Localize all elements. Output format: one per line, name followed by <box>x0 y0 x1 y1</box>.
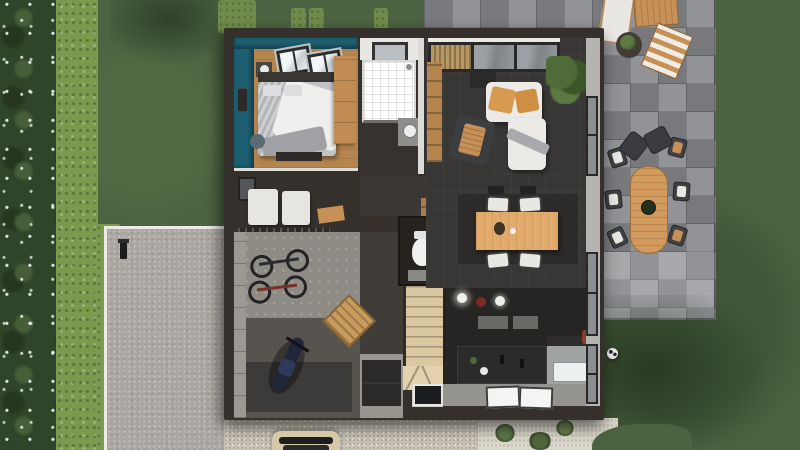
sink-faucet <box>500 355 504 364</box>
tall-hedge <box>56 0 98 450</box>
seat-cushion <box>488 86 516 114</box>
window-pane <box>474 45 514 69</box>
bed-plant <box>528 432 552 450</box>
pillow <box>284 85 302 96</box>
houseplant <box>546 56 588 104</box>
living-window-band <box>428 38 560 72</box>
bed-plant <box>556 420 574 436</box>
room-entry <box>360 354 403 418</box>
corner-sofa-chaise <box>508 118 546 170</box>
car-roof <box>283 445 329 450</box>
walk-in-shower <box>362 60 416 123</box>
dining-chair-back <box>520 186 536 194</box>
car-windshield <box>279 437 333 444</box>
soccer-ball <box>607 348 618 359</box>
table-planter <box>641 200 656 215</box>
bicycle <box>249 246 312 275</box>
dining-chair <box>485 251 511 270</box>
room-bathroom <box>360 38 424 174</box>
headboard <box>258 72 334 82</box>
hallway <box>360 176 426 216</box>
east-window <box>586 252 598 336</box>
bicycle-wheel <box>248 280 272 304</box>
pendant-light <box>495 296 505 306</box>
gravel-path <box>224 418 482 450</box>
wall-art <box>237 88 248 112</box>
bathroom-wall <box>418 38 424 174</box>
white-bowl <box>480 367 488 375</box>
glass-floor-panel <box>486 385 521 408</box>
wardrobe <box>334 56 356 144</box>
planter-pot <box>616 32 642 58</box>
lounge-chair-wood-seat <box>458 123 487 157</box>
hallway <box>360 232 403 354</box>
room-garage <box>234 232 360 418</box>
foot-bench <box>276 152 322 161</box>
wood-shelf <box>317 205 345 223</box>
house-east-wall <box>586 38 600 406</box>
east-window <box>586 344 598 404</box>
double-bed <box>258 82 336 156</box>
gray-throw <box>506 128 551 156</box>
bbq-corner-bench <box>633 0 679 27</box>
floorplan-scene <box>0 0 800 450</box>
parked-car <box>272 431 340 450</box>
bicycle <box>248 273 311 301</box>
garage-wall-panels <box>234 232 246 418</box>
sink-faucet <box>520 359 524 368</box>
bed-plant <box>495 424 515 442</box>
room-kitchen <box>443 288 600 406</box>
east-window <box>586 96 598 176</box>
outdoor-chair <box>604 189 623 210</box>
cabinet-panel <box>478 316 508 329</box>
flowering-trees-strip <box>0 0 62 450</box>
entry-glass-panel <box>413 384 443 406</box>
garden-lamp <box>120 242 127 259</box>
pillow <box>263 85 281 96</box>
pouf <box>250 134 265 149</box>
dining-table <box>476 212 558 250</box>
pendant-light <box>476 297 486 307</box>
entry-doormat <box>362 360 401 406</box>
washing-machine <box>248 189 278 225</box>
seat-cushion <box>514 88 539 113</box>
room-bedroom <box>234 38 358 168</box>
wooden-steps <box>403 286 447 366</box>
dining-chair-back <box>488 186 504 194</box>
dining-chair <box>486 195 511 213</box>
herb-pot <box>470 357 477 364</box>
tumble-dryer <box>282 191 310 225</box>
table-decor <box>494 222 505 235</box>
glass-floor-panel <box>519 386 554 409</box>
lounge-chair <box>447 114 496 166</box>
room-living <box>426 38 586 288</box>
sideboard <box>427 62 442 162</box>
pendant-light <box>457 293 467 303</box>
refrigerator-front <box>553 362 589 382</box>
kitchen-island <box>457 346 547 384</box>
room-laundry <box>234 168 358 233</box>
outdoor-chair <box>672 181 690 201</box>
dining-chair <box>517 251 542 270</box>
cabinet-panel <box>513 316 538 329</box>
table-cup <box>510 228 516 234</box>
